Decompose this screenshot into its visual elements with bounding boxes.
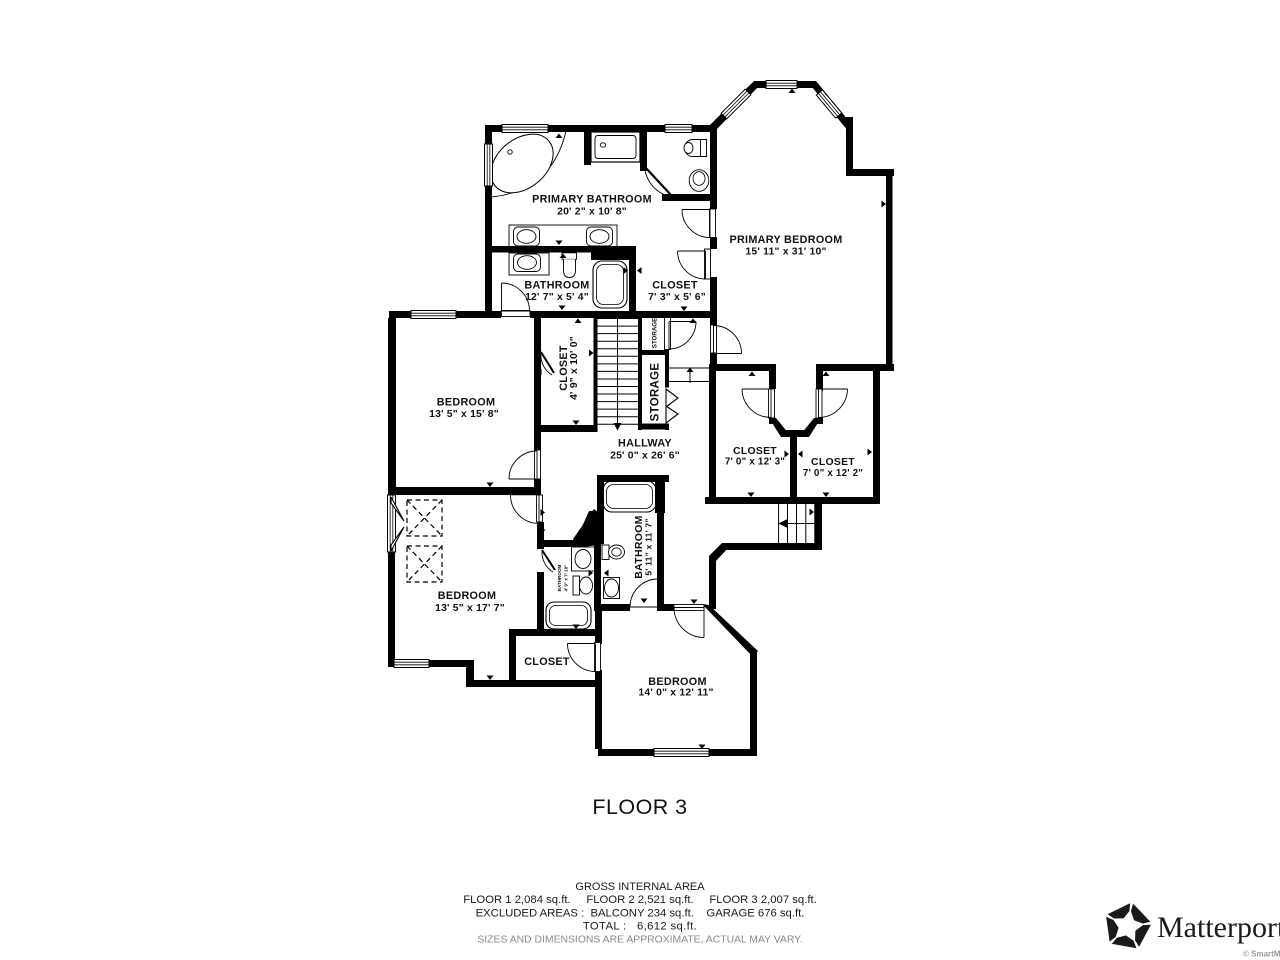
svg-text:FLOOR 1 2,084 sq.ft. FLOOR: FLOOR 1 2,084 sq.ft. FLOOR 2 2,521 sq.ft…: [463, 894, 817, 906]
svg-text:CLOSET: CLOSET: [733, 446, 777, 457]
svg-text:CLOSET: CLOSET: [652, 280, 698, 292]
svg-text:CLOSET: CLOSET: [524, 656, 570, 668]
svg-text:STORAGE: STORAGE: [650, 363, 662, 422]
svg-text:BATHROOM: BATHROOM: [524, 280, 589, 292]
svg-text:EXCLUDED AREAS : BALCONY 234: EXCLUDED AREAS : BALCONY 234 sq.ft. GARA…: [476, 908, 805, 920]
svg-text:© SmartMLS: © SmartMLS: [1243, 950, 1280, 959]
svg-text:13' 5" x 17' 7": 13' 5" x 17' 7": [435, 603, 505, 614]
svg-text:FLOOR 3: FLOOR 3: [592, 795, 687, 819]
svg-text:BEDROOM: BEDROOM: [438, 590, 496, 602]
svg-text:4' 9" x 10' 0": 4' 9" x 10' 0": [569, 336, 580, 400]
svg-text:20' 2" x 10' 8": 20' 2" x 10' 8": [557, 207, 627, 218]
svg-text:PRIMARY BEDROOM: PRIMARY BEDROOM: [729, 234, 842, 246]
svg-text:BEDROOM: BEDROOM: [648, 676, 706, 688]
svg-text:CLOSET: CLOSET: [811, 457, 855, 468]
svg-text:25' 0" x 26' 6": 25' 0" x 26' 6": [610, 451, 680, 462]
svg-text:7' 3" x 5' 6": 7' 3" x 5' 6": [648, 292, 706, 303]
svg-text:TOTAL : 6,612 sq.ft.: TOTAL : 6,612 sq.ft.: [583, 921, 697, 933]
svg-text:4' 9" x 7' 10": 4' 9" x 7' 10": [564, 565, 569, 592]
svg-text:HALLWAY: HALLWAY: [618, 438, 672, 450]
svg-text:15' 11" x 31' 10": 15' 11" x 31' 10": [745, 247, 826, 258]
svg-text:13' 5" x 15' 8": 13' 5" x 15' 8": [429, 409, 499, 420]
svg-text:GROSS INTERNAL AREA: GROSS INTERNAL AREA: [575, 881, 705, 893]
svg-text:5' 11" x 11' 7": 5' 11" x 11' 7": [644, 518, 654, 575]
svg-text:14' 0" x 12' 11": 14' 0" x 12' 11": [638, 688, 713, 699]
svg-text:PRIMARY BATHROOM: PRIMARY BATHROOM: [532, 194, 652, 206]
svg-text:7' 0" x 12' 2": 7' 0" x 12' 2": [803, 468, 863, 479]
svg-text:SIZES AND DIMENSIONS ARE APPRO: SIZES AND DIMENSIONS ARE APPROXIMATE, AC…: [477, 935, 802, 946]
svg-text:7' 0" x 12' 3": 7' 0" x 12' 3": [725, 457, 785, 468]
svg-text:STORAGE: STORAGE: [652, 318, 659, 348]
svg-text:BATHROOM: BATHROOM: [557, 564, 562, 591]
svg-text:12' 7" x 5' 4": 12' 7" x 5' 4": [525, 292, 589, 303]
svg-text:BEDROOM: BEDROOM: [437, 397, 495, 409]
svg-text:Matterport: Matterport: [1157, 911, 1280, 944]
